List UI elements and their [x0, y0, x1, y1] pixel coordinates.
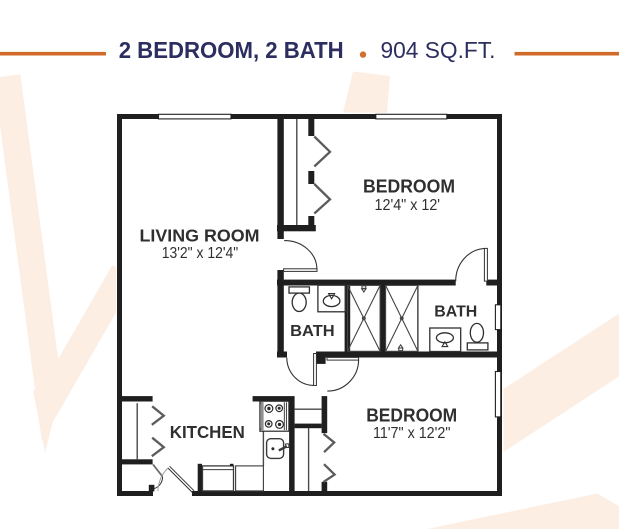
svg-text:BEDROOM: BEDROOM	[363, 177, 455, 197]
svg-text:11'7" x 12'2": 11'7" x 12'2"	[373, 425, 451, 442]
svg-text:BEDROOM: BEDROOM	[366, 405, 457, 425]
svg-text:BATH: BATH	[290, 323, 335, 340]
svg-text:BATH: BATH	[434, 303, 477, 320]
svg-text:12'4" x 12': 12'4" x 12'	[375, 197, 441, 214]
svg-text:KITCHEN: KITCHEN	[170, 422, 245, 442]
svg-text:904 SQ.FT.: 904 SQ.FT.	[381, 37, 496, 63]
svg-text:13'2" x 12'4": 13'2" x 12'4"	[162, 245, 239, 262]
svg-text:LIVING ROOM: LIVING ROOM	[140, 226, 260, 246]
svg-text:2 BEDROOM, 2 BATH: 2 BEDROOM, 2 BATH	[119, 37, 344, 63]
